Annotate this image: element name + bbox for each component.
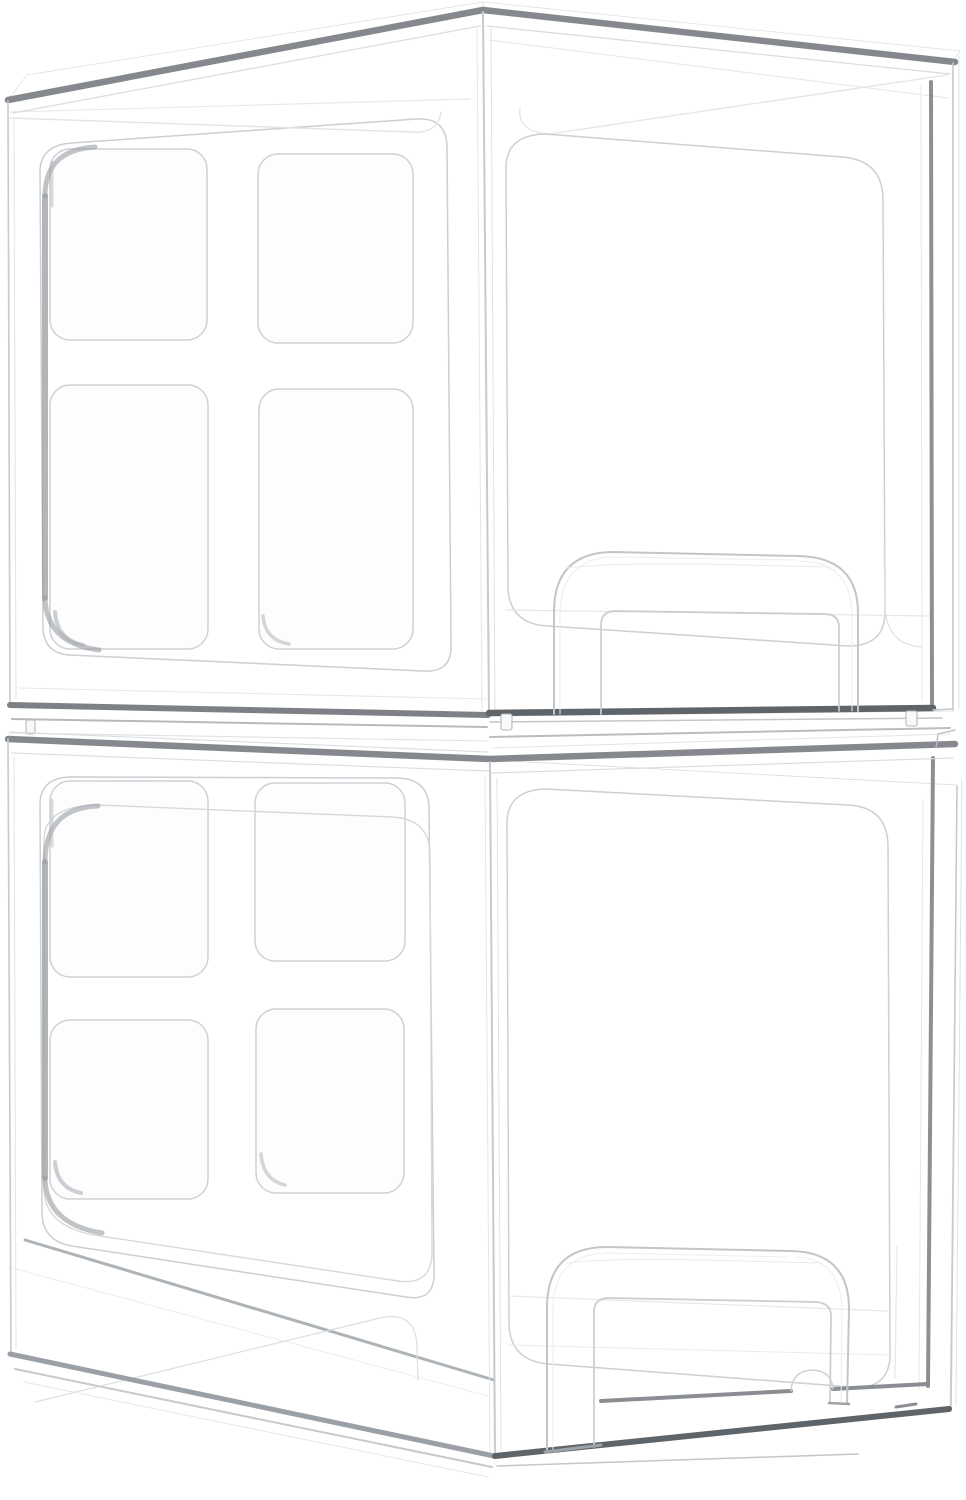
panel-cell	[259, 389, 413, 649]
panel-cell	[50, 1020, 208, 1199]
stacked-drawers-illustration	[0, 0, 966, 1500]
panel-cell	[258, 154, 413, 343]
stacking-foot	[906, 711, 917, 726]
panel-cell	[50, 385, 208, 649]
inner-right-edge	[931, 82, 932, 704]
stacking-foot	[26, 720, 35, 734]
stacking-foot	[501, 714, 512, 730]
panel-cell	[256, 1009, 404, 1193]
bottom-band-ext	[933, 709, 952, 710]
product-photo-stage	[0, 0, 966, 1500]
panel-cell	[50, 149, 207, 340]
panel-cell	[255, 783, 405, 961]
handle-foot-cap	[829, 1403, 849, 1404]
